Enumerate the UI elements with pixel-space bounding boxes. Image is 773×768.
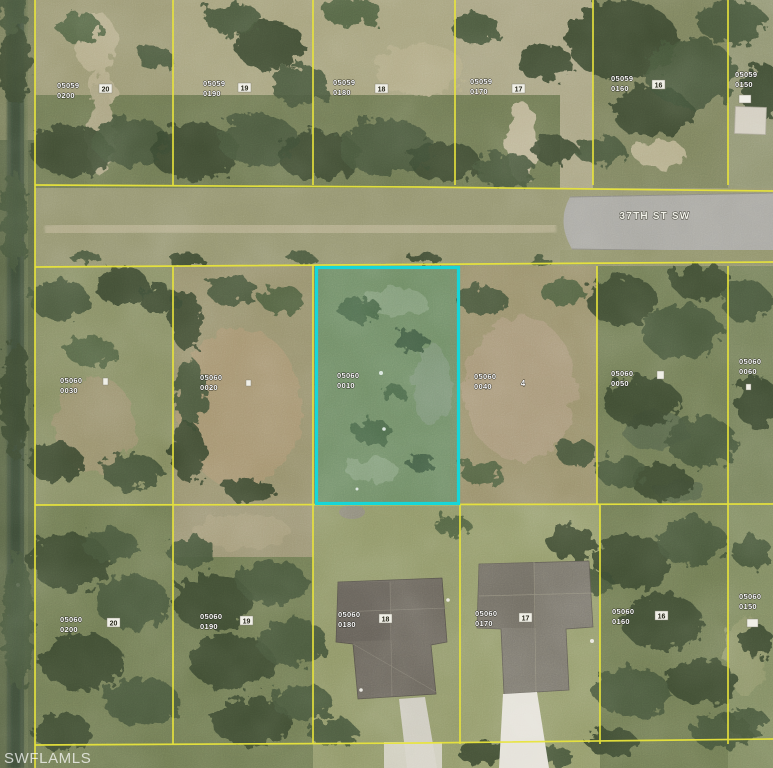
svg-text:05059: 05059: [735, 70, 757, 79]
svg-text:05059: 05059: [470, 77, 492, 86]
listing-photo: 05059 0200 20 05059 0190 19 05059 0180 1…: [0, 0, 773, 768]
aerial-photo: 05059 0200 20 05059 0190 19 05059 0180 1…: [0, 0, 773, 768]
lot-marker: [746, 384, 751, 390]
svg-text:0150: 0150: [735, 80, 753, 89]
lot-number-box: 16: [655, 611, 668, 621]
svg-text:0010: 0010: [337, 381, 355, 390]
svg-text:05060: 05060: [200, 373, 222, 382]
svg-text:05060: 05060: [60, 615, 82, 624]
svg-text:17: 17: [522, 616, 530, 623]
svg-text:0200: 0200: [60, 625, 78, 634]
lot-number-box: 17: [519, 613, 532, 623]
svg-text:19: 19: [241, 86, 249, 93]
svg-text:05060: 05060: [612, 607, 634, 616]
lot-number-box: [739, 95, 751, 103]
svg-text:0030: 0030: [60, 386, 78, 395]
svg-text:0190: 0190: [200, 622, 218, 631]
svg-text:05060: 05060: [200, 612, 222, 621]
svg-text:05060: 05060: [739, 357, 761, 366]
svg-text:0060: 0060: [739, 367, 757, 376]
svg-text:05060: 05060: [475, 609, 497, 618]
lot-number: 4: [521, 379, 526, 388]
svg-text:05060: 05060: [60, 376, 82, 385]
svg-text:05059: 05059: [57, 81, 79, 90]
lot-number-box: 16: [652, 80, 665, 90]
lot-number-box: 18: [375, 84, 388, 94]
svg-text:05060: 05060: [739, 592, 761, 601]
svg-text:05059: 05059: [203, 79, 225, 88]
svg-text:17: 17: [515, 87, 523, 94]
svg-text:20: 20: [110, 621, 118, 628]
svg-text:0160: 0160: [611, 84, 629, 93]
svg-text:0170: 0170: [470, 87, 488, 96]
svg-text:18: 18: [382, 617, 390, 624]
lot-number-box: 20: [99, 84, 112, 94]
svg-text:0040: 0040: [474, 382, 492, 391]
mls-watermark: SWFLAMLS: [4, 750, 91, 767]
svg-text:0020: 0020: [200, 383, 218, 392]
svg-text:0180: 0180: [333, 88, 351, 97]
svg-text:20: 20: [102, 87, 110, 94]
street-name-label: 37TH ST SW: [620, 211, 691, 222]
svg-text:0170: 0170: [475, 619, 493, 628]
svg-text:0160: 0160: [612, 617, 630, 626]
lot-marker: [103, 378, 108, 385]
svg-text:0180: 0180: [338, 620, 356, 629]
svg-text:05059: 05059: [333, 78, 355, 87]
svg-text:19: 19: [243, 619, 251, 626]
svg-text:05060: 05060: [338, 610, 360, 619]
svg-text:0190: 0190: [203, 89, 221, 98]
svg-text:18: 18: [378, 87, 386, 94]
svg-text:0050: 0050: [611, 379, 629, 388]
lot-number-box: 20: [107, 618, 120, 628]
lot-marker: [657, 371, 664, 379]
lot-number-box: [747, 619, 758, 627]
lot-number-box: 19: [238, 83, 251, 93]
svg-text:05060: 05060: [611, 369, 633, 378]
lot-number-box: 17: [512, 84, 525, 94]
lot-number-box: 19: [240, 616, 253, 626]
svg-text:05060: 05060: [474, 372, 496, 381]
svg-text:0200: 0200: [57, 91, 75, 100]
svg-text:05060: 05060: [337, 371, 359, 380]
lot-number-box: 18: [379, 614, 392, 624]
lot-marker: [246, 380, 251, 386]
svg-text:16: 16: [658, 614, 666, 621]
svg-text:05059: 05059: [611, 74, 633, 83]
svg-text:16: 16: [655, 83, 663, 90]
svg-text:0150: 0150: [739, 602, 757, 611]
